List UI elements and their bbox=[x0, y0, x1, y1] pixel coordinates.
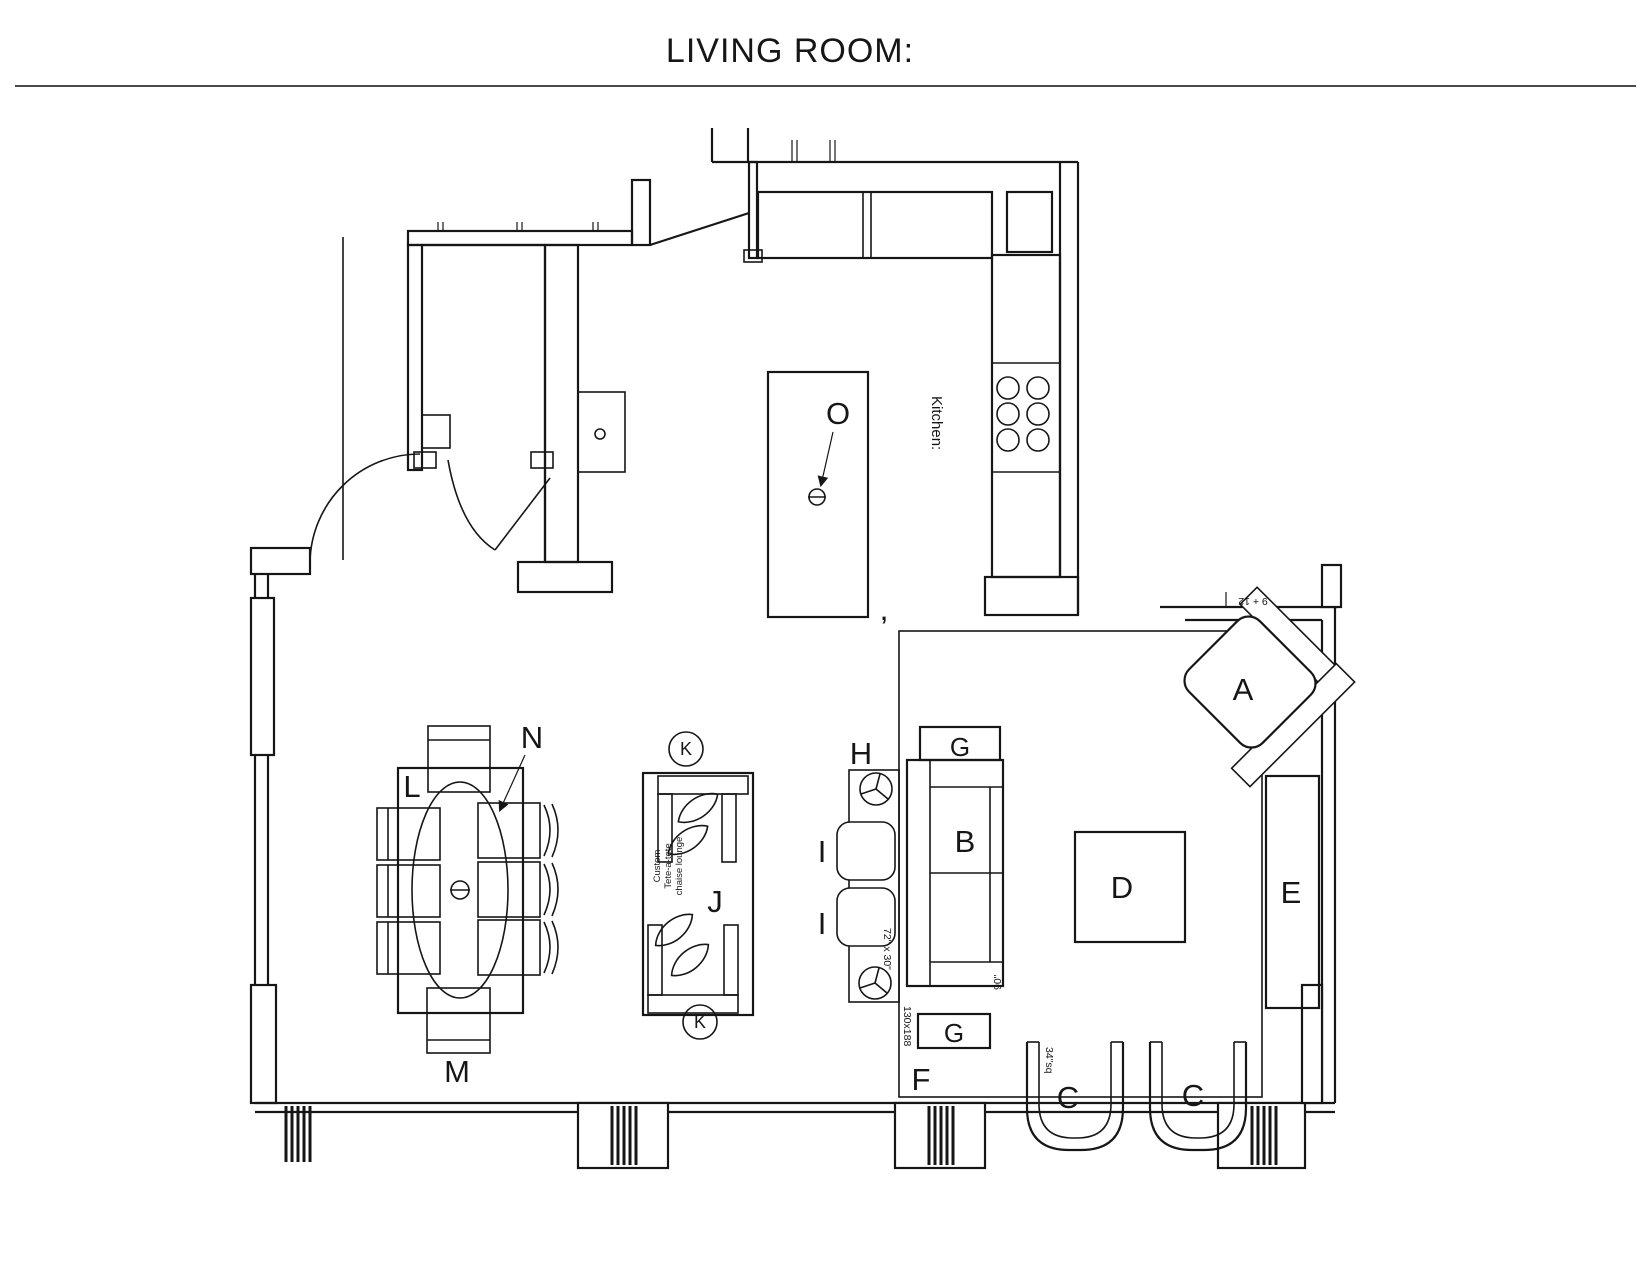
label-g1: G bbox=[950, 732, 970, 762]
chaise-note-line3: chaise lounge bbox=[674, 837, 685, 896]
label-h: H bbox=[850, 736, 872, 771]
chaise-note-line1: Custom bbox=[652, 850, 663, 883]
label-i2: I bbox=[818, 906, 827, 941]
n-pointer-arrow bbox=[500, 755, 525, 810]
console-dims: 72" x 30" bbox=[881, 928, 893, 970]
console-strip: I I H 72" x 30" bbox=[818, 736, 899, 1002]
chair-size-note: 34"sq bbox=[1043, 1047, 1055, 1074]
label-n: N bbox=[521, 720, 543, 755]
label-g2: G bbox=[944, 1018, 964, 1048]
dining-area: L M N bbox=[377, 720, 558, 1089]
label-a: A bbox=[1233, 672, 1254, 707]
window-hatch bbox=[286, 1106, 1276, 1165]
drum-table-top bbox=[860, 773, 892, 805]
o-pointer-arrow bbox=[821, 432, 833, 485]
label-c2: C bbox=[1182, 1078, 1204, 1113]
tub-chairs: 34"sq C C bbox=[1027, 1042, 1246, 1150]
label-k2: K bbox=[694, 1012, 706, 1032]
label-c1: C bbox=[1057, 1080, 1079, 1115]
door-leaf bbox=[495, 478, 550, 550]
floorplan-drawing: LIVING ROOM: bbox=[0, 0, 1650, 1275]
floorplan-page: LIVING ROOM: bbox=[0, 0, 1650, 1275]
sofa-area: B 90" G G bbox=[907, 727, 1004, 1048]
chaise-note-line2: Tete-a-tete bbox=[663, 843, 674, 888]
fixture-knob bbox=[595, 429, 605, 439]
wall-dimension: 9 + 12 bbox=[1238, 595, 1268, 607]
stove-burners bbox=[997, 377, 1049, 451]
kitchen-cabinet-right bbox=[1007, 192, 1052, 252]
label-k1: K bbox=[680, 739, 692, 759]
separator-mark: , bbox=[881, 600, 887, 625]
kitchen-counter bbox=[992, 255, 1060, 577]
label-e: E bbox=[1281, 875, 1302, 910]
dining-chairs-left bbox=[377, 808, 440, 974]
pouf-top bbox=[837, 822, 895, 880]
kitchen-area: Kitchen: O bbox=[758, 192, 1078, 617]
kitchen-island bbox=[768, 372, 868, 617]
kitchen-cabinets bbox=[758, 192, 992, 258]
label-b: B bbox=[955, 824, 976, 859]
label-m: M bbox=[444, 1054, 470, 1089]
label-f: F bbox=[912, 1062, 931, 1097]
chaise-area: Custom Tete-a-tete chaise lounge J K K bbox=[643, 732, 753, 1039]
page-title: LIVING ROOM: bbox=[666, 32, 914, 70]
kitchen-counter-cap bbox=[985, 577, 1078, 615]
door-swing-arc-left bbox=[310, 454, 420, 562]
label-l: L bbox=[403, 769, 420, 804]
label-j: J bbox=[707, 884, 723, 919]
drum-table-bottom bbox=[859, 967, 891, 999]
wall-fixture bbox=[578, 392, 625, 472]
door-swing-arc-right bbox=[448, 460, 495, 550]
rug-dims: 130x188 bbox=[901, 1006, 913, 1046]
dining-chairs-right bbox=[478, 803, 558, 975]
label-i1: I bbox=[818, 834, 827, 869]
kitchen-room-label: Kitchen: bbox=[928, 396, 945, 450]
label-d: D bbox=[1111, 870, 1133, 905]
label-o: O bbox=[826, 396, 850, 431]
corner-chair bbox=[1154, 586, 1355, 787]
sofa-length: 90" bbox=[992, 974, 1004, 990]
window-bay bbox=[1218, 1103, 1305, 1168]
